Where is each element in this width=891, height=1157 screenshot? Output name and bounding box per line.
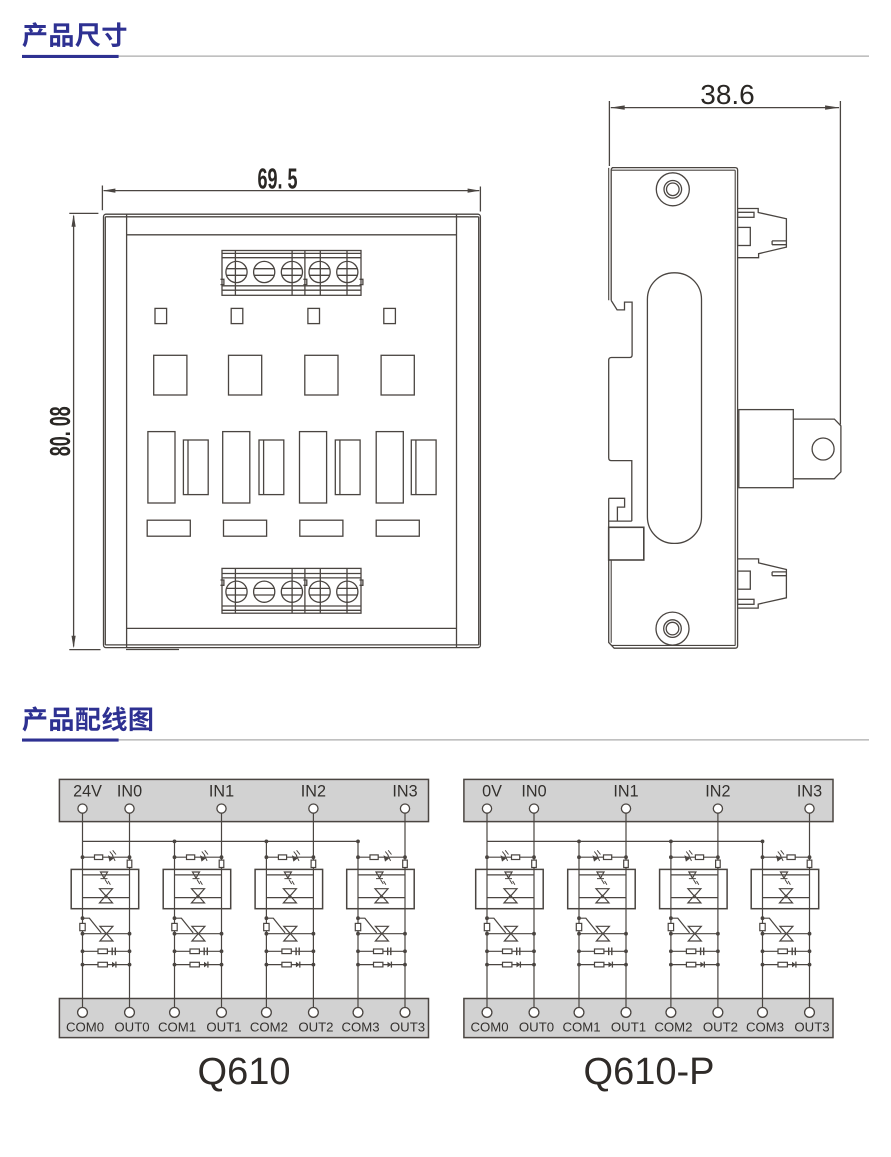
svg-text:IN3: IN3 — [797, 783, 822, 801]
svg-text:IN0: IN0 — [117, 783, 142, 801]
svg-text:IN1: IN1 — [209, 783, 234, 801]
svg-text:IN1: IN1 — [613, 783, 638, 801]
svg-text:IN3: IN3 — [392, 783, 417, 801]
svg-text:OUT2: OUT2 — [298, 1020, 333, 1035]
svg-text:IN0: IN0 — [521, 783, 546, 801]
svg-text:COM0: COM0 — [66, 1020, 104, 1035]
svg-text:OUT2: OUT2 — [703, 1020, 738, 1035]
svg-text:Q610: Q610 — [198, 1051, 291, 1093]
svg-text:OUT3: OUT3 — [390, 1020, 425, 1035]
svg-text:COM0: COM0 — [470, 1020, 508, 1035]
svg-text:80. 08: 80. 08 — [45, 406, 77, 456]
svg-text:38.6: 38.6 — [700, 79, 755, 110]
svg-text:OUT0: OUT0 — [114, 1020, 149, 1035]
svg-text:OUT1: OUT1 — [206, 1020, 241, 1035]
svg-text:24V: 24V — [73, 783, 102, 801]
svg-text:COM2: COM2 — [250, 1020, 288, 1035]
svg-text:COM1: COM1 — [562, 1020, 600, 1035]
svg-text:COM3: COM3 — [746, 1020, 784, 1035]
svg-text:COM3: COM3 — [341, 1020, 379, 1035]
svg-text:IN2: IN2 — [301, 783, 326, 801]
svg-text:OUT1: OUT1 — [611, 1020, 646, 1035]
svg-text:IN2: IN2 — [705, 783, 730, 801]
svg-text:69. 5: 69. 5 — [258, 163, 298, 195]
svg-text:OUT3: OUT3 — [794, 1020, 829, 1035]
svg-text:COM1: COM1 — [158, 1020, 196, 1035]
svg-text:COM2: COM2 — [654, 1020, 692, 1035]
svg-text:0V: 0V — [482, 783, 502, 801]
svg-text:OUT0: OUT0 — [519, 1020, 554, 1035]
svg-text:Q610-P: Q610-P — [584, 1051, 715, 1093]
